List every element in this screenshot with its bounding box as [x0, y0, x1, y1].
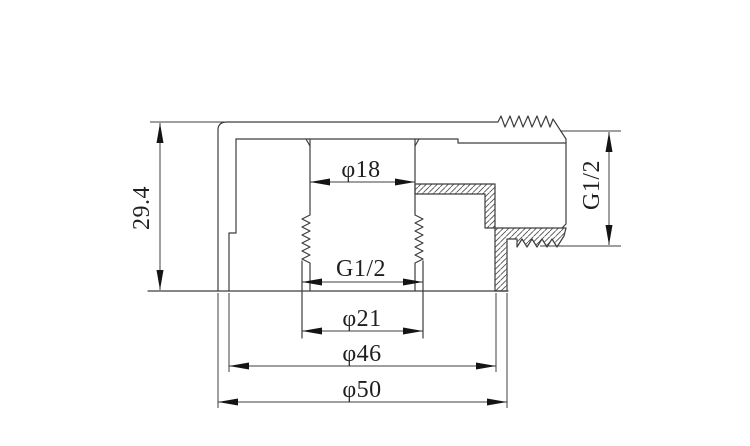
arrowhead-major-right — [403, 328, 423, 335]
part-outline-path — [218, 116, 566, 291]
dim-bore-label: φ18 — [341, 157, 380, 183]
arrowhead-outer-left — [218, 399, 238, 406]
dim-outer-label: φ50 — [342, 377, 381, 403]
dim-rim-label: φ46 — [342, 341, 381, 367]
drawing-canvas: 29.4 φ18 G1/2 φ21 φ46 φ50 G1/2 — [0, 0, 750, 446]
dim-int-thread-label: G1/2 — [336, 256, 386, 282]
section-hatch-region — [415, 184, 566, 291]
bore-right-thread-line — [415, 139, 423, 291]
inner-ceiling-line — [236, 139, 566, 143]
dim-height-label: 29.4 — [129, 186, 155, 230]
inner-skirt-line — [229, 139, 236, 291]
arrowhead-height-bottom — [157, 270, 164, 290]
arrowhead-height-top — [157, 123, 164, 143]
arrowhead-int-thread-right — [403, 279, 423, 286]
arrowhead-bore-left — [310, 179, 330, 186]
bore-left-thread-line — [302, 139, 310, 291]
arrowhead-rim-right — [476, 363, 496, 370]
arrowhead-side-bottom — [606, 225, 613, 245]
dim-side-thread-label: G1/2 — [579, 160, 605, 210]
arrowhead-side-top — [606, 132, 613, 152]
arrowhead-outer-right — [487, 399, 507, 406]
arrowhead-major-left — [302, 328, 322, 335]
arrowhead-rim-left — [229, 363, 249, 370]
dim-major-label: φ21 — [342, 306, 381, 332]
arrowhead-bore-right — [395, 179, 415, 186]
arrowhead-int-thread-left — [302, 279, 322, 286]
technical-drawing: 29.4 φ18 G1/2 φ21 φ46 φ50 G1/2 — [0, 0, 750, 446]
